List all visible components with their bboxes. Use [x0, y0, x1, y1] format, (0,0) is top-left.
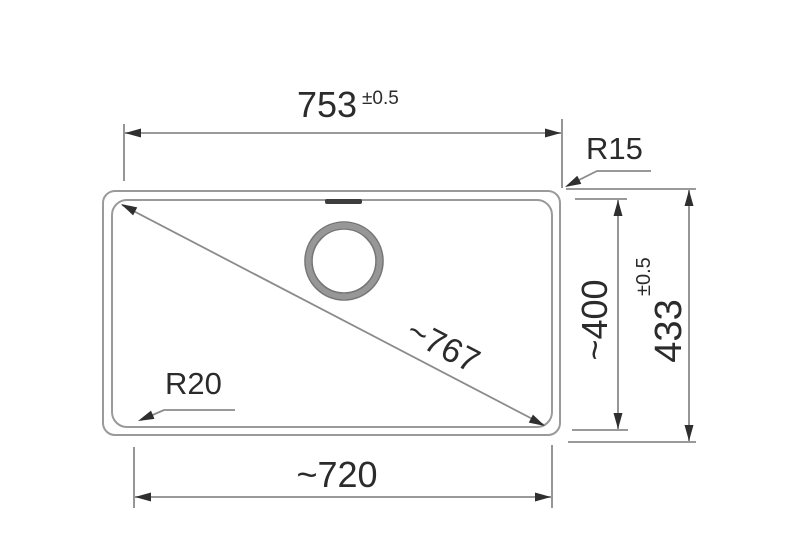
sink-dimension-drawing: 753 ±0.5 R15 R20 ~767	[0, 0, 800, 544]
arrowhead-up	[614, 200, 623, 216]
callout-radius-top-right: R15	[563, 131, 651, 191]
top-width-tolerance-label: ±0.5	[362, 88, 399, 109]
radius-bottom-left-label: R20	[165, 366, 222, 401]
drain-ring	[309, 226, 380, 297]
outer-height-tolerance-label: ±0.5	[633, 257, 655, 296]
arrowhead-up	[685, 190, 694, 206]
arrowhead-left	[135, 493, 151, 502]
drain-hole	[305, 222, 383, 300]
top-width-label: 753	[297, 84, 357, 125]
inner-height-label: ~400	[574, 279, 615, 360]
dimension-inner-height: ~400	[572, 199, 628, 430]
arrowhead	[136, 411, 154, 426]
outer-height-label: 433	[648, 299, 690, 362]
arrowhead-top-left	[119, 200, 137, 215]
arrowhead-left	[125, 129, 141, 138]
leader-line	[141, 410, 235, 420]
arrowhead-down	[685, 425, 694, 441]
diagonal-label: ~767	[400, 312, 485, 381]
arrowhead-down	[614, 413, 623, 429]
callout-radius-bottom-left: R20	[136, 366, 235, 425]
overflow-slot	[325, 199, 362, 204]
drain-outer-edge	[305, 222, 383, 300]
bottom-width-label: ~720	[296, 454, 377, 495]
arrowhead-right	[535, 493, 551, 502]
arrowhead-right	[545, 129, 561, 138]
drain-inner-edge	[312, 229, 376, 293]
dimension-top-width: 753 ±0.5	[124, 84, 562, 188]
dimension-bottom-width: ~720	[134, 445, 552, 508]
technical-drawing-page: 753 ±0.5 R15 R20 ~767	[0, 0, 800, 544]
radius-top-right-label: R15	[586, 131, 643, 166]
